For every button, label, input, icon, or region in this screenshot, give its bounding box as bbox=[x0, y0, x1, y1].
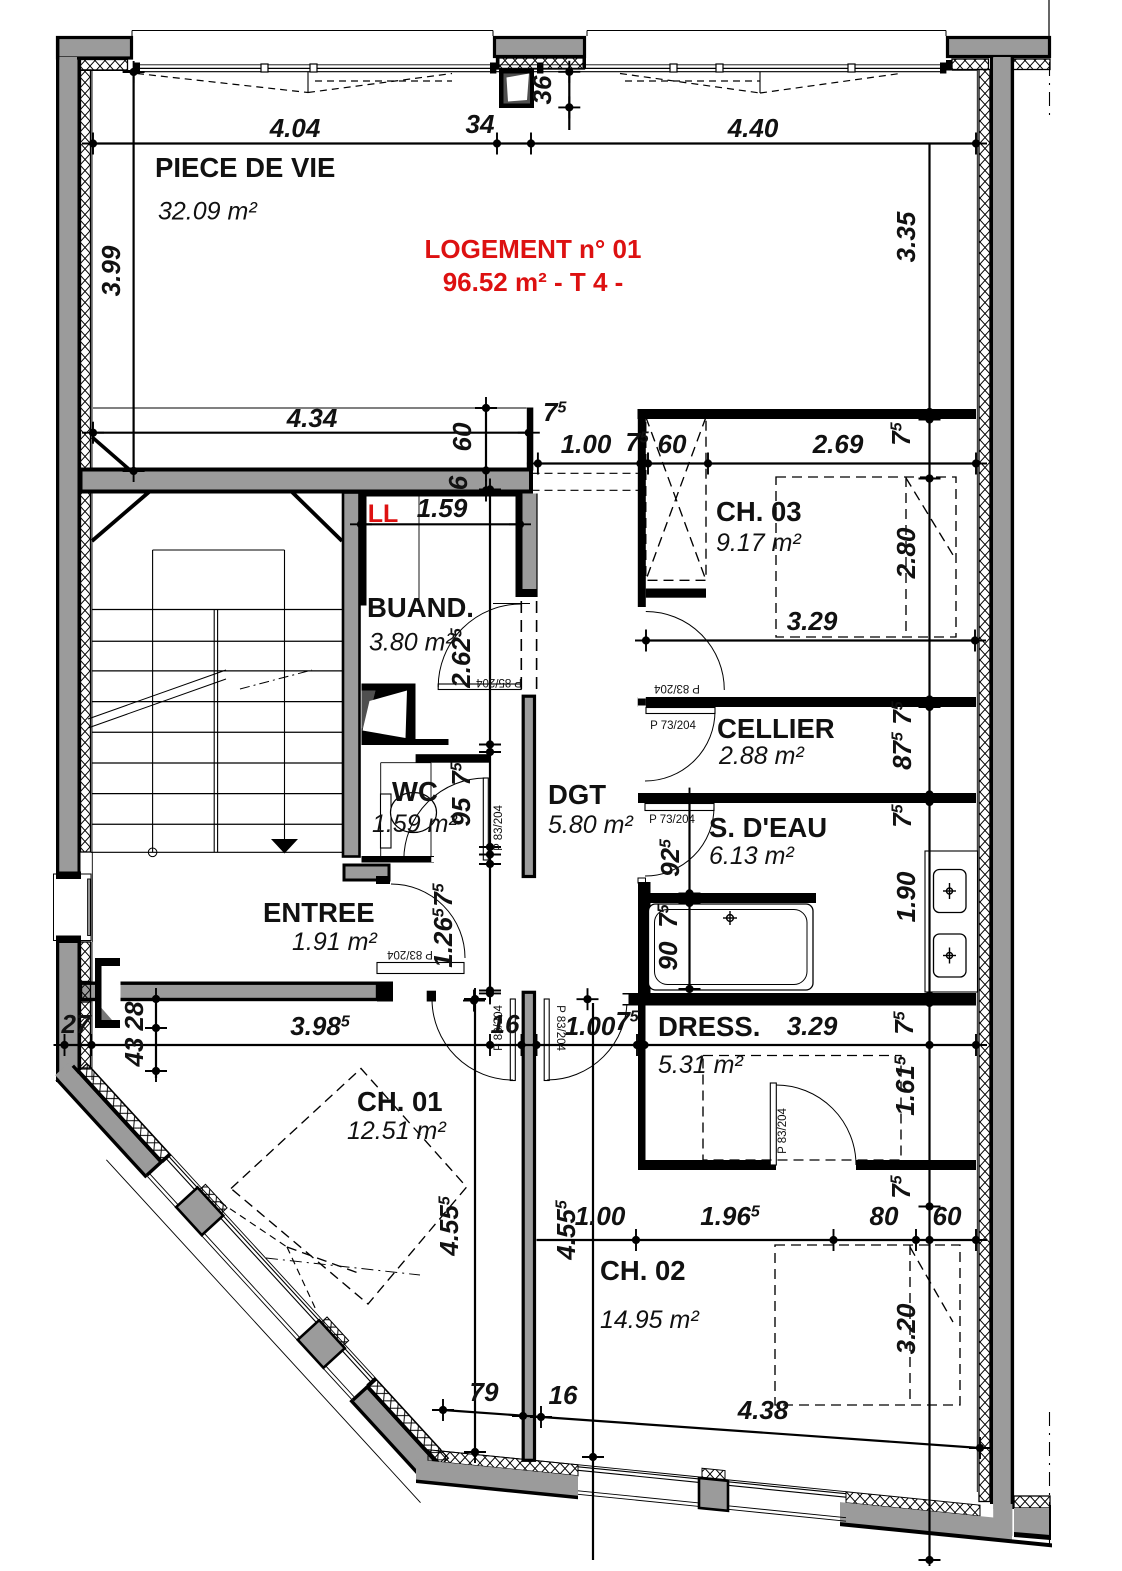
svg-text:1.59 m²: 1.59 m² bbox=[372, 810, 458, 838]
svg-text:P 83/204: P 83/204 bbox=[777, 1107, 789, 1153]
svg-text:CH. 02: CH. 02 bbox=[600, 1255, 686, 1286]
svg-text:4.40: 4.40 bbox=[727, 113, 779, 143]
svg-text:16: 16 bbox=[549, 1380, 578, 1410]
svg-text:6.13 m²: 6.13 m² bbox=[709, 842, 795, 870]
svg-text:DGT: DGT bbox=[548, 779, 606, 810]
svg-text:28: 28 bbox=[119, 1001, 149, 1031]
svg-text:36: 36 bbox=[527, 75, 557, 104]
svg-text:P 85/204: P 85/204 bbox=[475, 676, 521, 688]
svg-text:60: 60 bbox=[933, 1201, 962, 1231]
svg-text:4.38: 4.38 bbox=[737, 1395, 789, 1425]
svg-text:6: 6 bbox=[443, 475, 473, 490]
svg-text:32.09 m²: 32.09 m² bbox=[158, 198, 258, 226]
svg-text:14.95 m²: 14.95 m² bbox=[600, 1306, 700, 1334]
svg-text:1.59: 1.59 bbox=[417, 493, 468, 523]
svg-text:2.69: 2.69 bbox=[812, 429, 864, 459]
svg-text:43: 43 bbox=[119, 1037, 149, 1067]
svg-text:27: 27 bbox=[61, 1009, 92, 1039]
svg-text:80: 80 bbox=[870, 1201, 899, 1231]
svg-text:P 73/204: P 73/204 bbox=[650, 720, 696, 732]
svg-text:5.80 m²: 5.80 m² bbox=[548, 811, 634, 839]
svg-text:ENTREE: ENTREE bbox=[263, 897, 375, 928]
svg-text:P 83/204: P 83/204 bbox=[493, 1004, 505, 1050]
svg-text:DRESS.: DRESS. bbox=[658, 1011, 760, 1042]
svg-text:PIECE DE VIE: PIECE DE VIE bbox=[155, 152, 335, 183]
svg-text:60: 60 bbox=[447, 422, 477, 451]
svg-text:60: 60 bbox=[658, 429, 687, 459]
svg-text:LL: LL bbox=[368, 500, 399, 528]
svg-text:2.88 m²: 2.88 m² bbox=[718, 742, 805, 770]
svg-text:1.00: 1.00 bbox=[565, 1011, 616, 1041]
svg-text:P 83/204: P 83/204 bbox=[653, 682, 699, 694]
svg-text:1.90: 1.90 bbox=[891, 871, 921, 922]
svg-text:1.91 m²: 1.91 m² bbox=[292, 928, 378, 956]
svg-text:P 83/204: P 83/204 bbox=[493, 804, 505, 850]
svg-text:LOGEMENT n° 01: LOGEMENT n° 01 bbox=[425, 234, 642, 264]
svg-text:12.51 m²: 12.51 m² bbox=[347, 1117, 447, 1145]
svg-text:9.17 m²: 9.17 m² bbox=[716, 529, 802, 557]
svg-text:3.29: 3.29 bbox=[787, 1011, 838, 1041]
svg-text:3.29: 3.29 bbox=[787, 606, 838, 636]
svg-text:3.80 m²: 3.80 m² bbox=[369, 629, 455, 657]
svg-text:CH. 03: CH. 03 bbox=[716, 496, 802, 527]
svg-text:5.31 m²: 5.31 m² bbox=[658, 1051, 744, 1079]
svg-text:P 83/204: P 83/204 bbox=[554, 1005, 566, 1051]
svg-text:3.35: 3.35 bbox=[891, 211, 921, 262]
svg-text:CELLIER: CELLIER bbox=[717, 713, 835, 744]
svg-text:S. D'EAU: S. D'EAU bbox=[709, 812, 827, 843]
svg-text:4.04: 4.04 bbox=[269, 113, 321, 143]
svg-text:1.00: 1.00 bbox=[575, 1201, 626, 1231]
svg-text:3.20: 3.20 bbox=[891, 1303, 921, 1354]
svg-text:BUAND.: BUAND. bbox=[367, 592, 474, 623]
svg-text:90: 90 bbox=[653, 941, 683, 970]
svg-text:96.52 m² - T 4 -: 96.52 m² - T 4 - bbox=[443, 267, 624, 297]
svg-text:1.00: 1.00 bbox=[561, 429, 612, 459]
svg-text:2.80: 2.80 bbox=[891, 527, 921, 579]
svg-text:P 83/204: P 83/204 bbox=[386, 948, 432, 960]
svg-text:3.99: 3.99 bbox=[96, 245, 126, 296]
svg-text:34: 34 bbox=[466, 109, 495, 139]
svg-text:WC: WC bbox=[392, 776, 438, 807]
svg-text:CH. 01: CH. 01 bbox=[357, 1086, 443, 1117]
svg-text:79: 79 bbox=[470, 1377, 499, 1407]
svg-text:P 73/204: P 73/204 bbox=[649, 814, 695, 826]
